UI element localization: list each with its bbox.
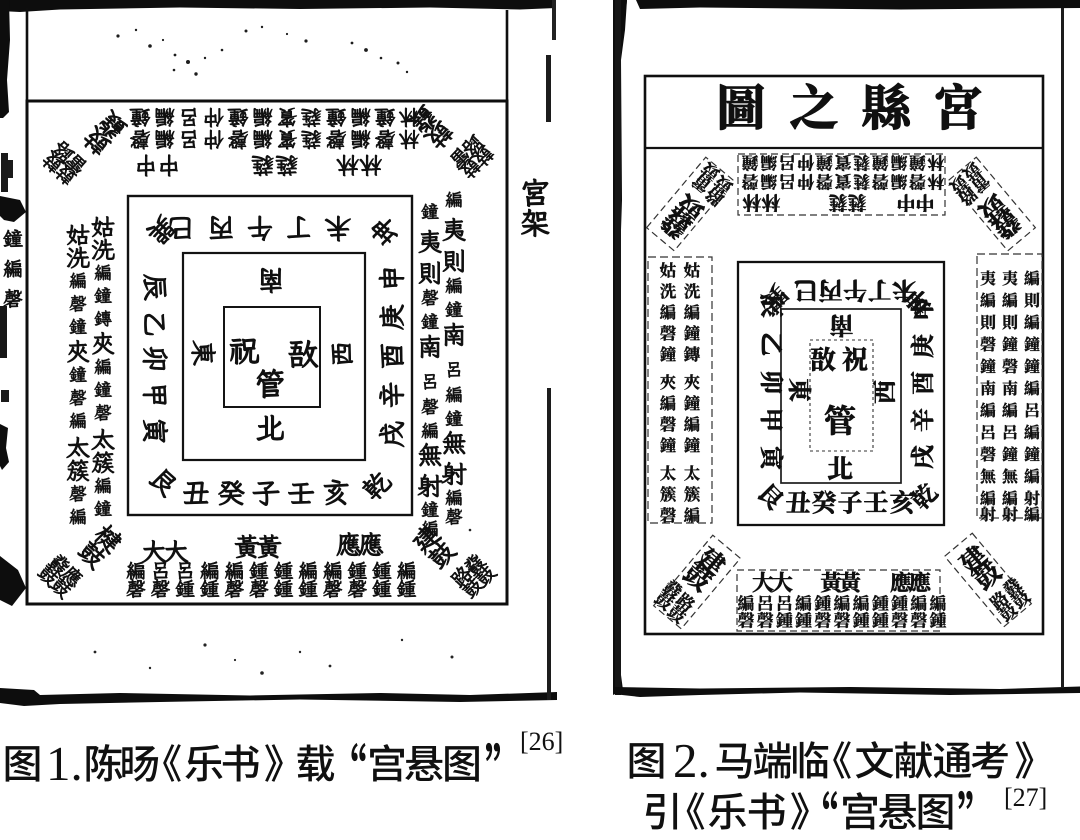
svg-text:[27]: [27] [1004,783,1047,812]
svg-text:2.: 2. [673,733,710,788]
svg-text:1.: 1. [46,736,83,791]
svg-text:[26]: [26] [520,727,563,756]
